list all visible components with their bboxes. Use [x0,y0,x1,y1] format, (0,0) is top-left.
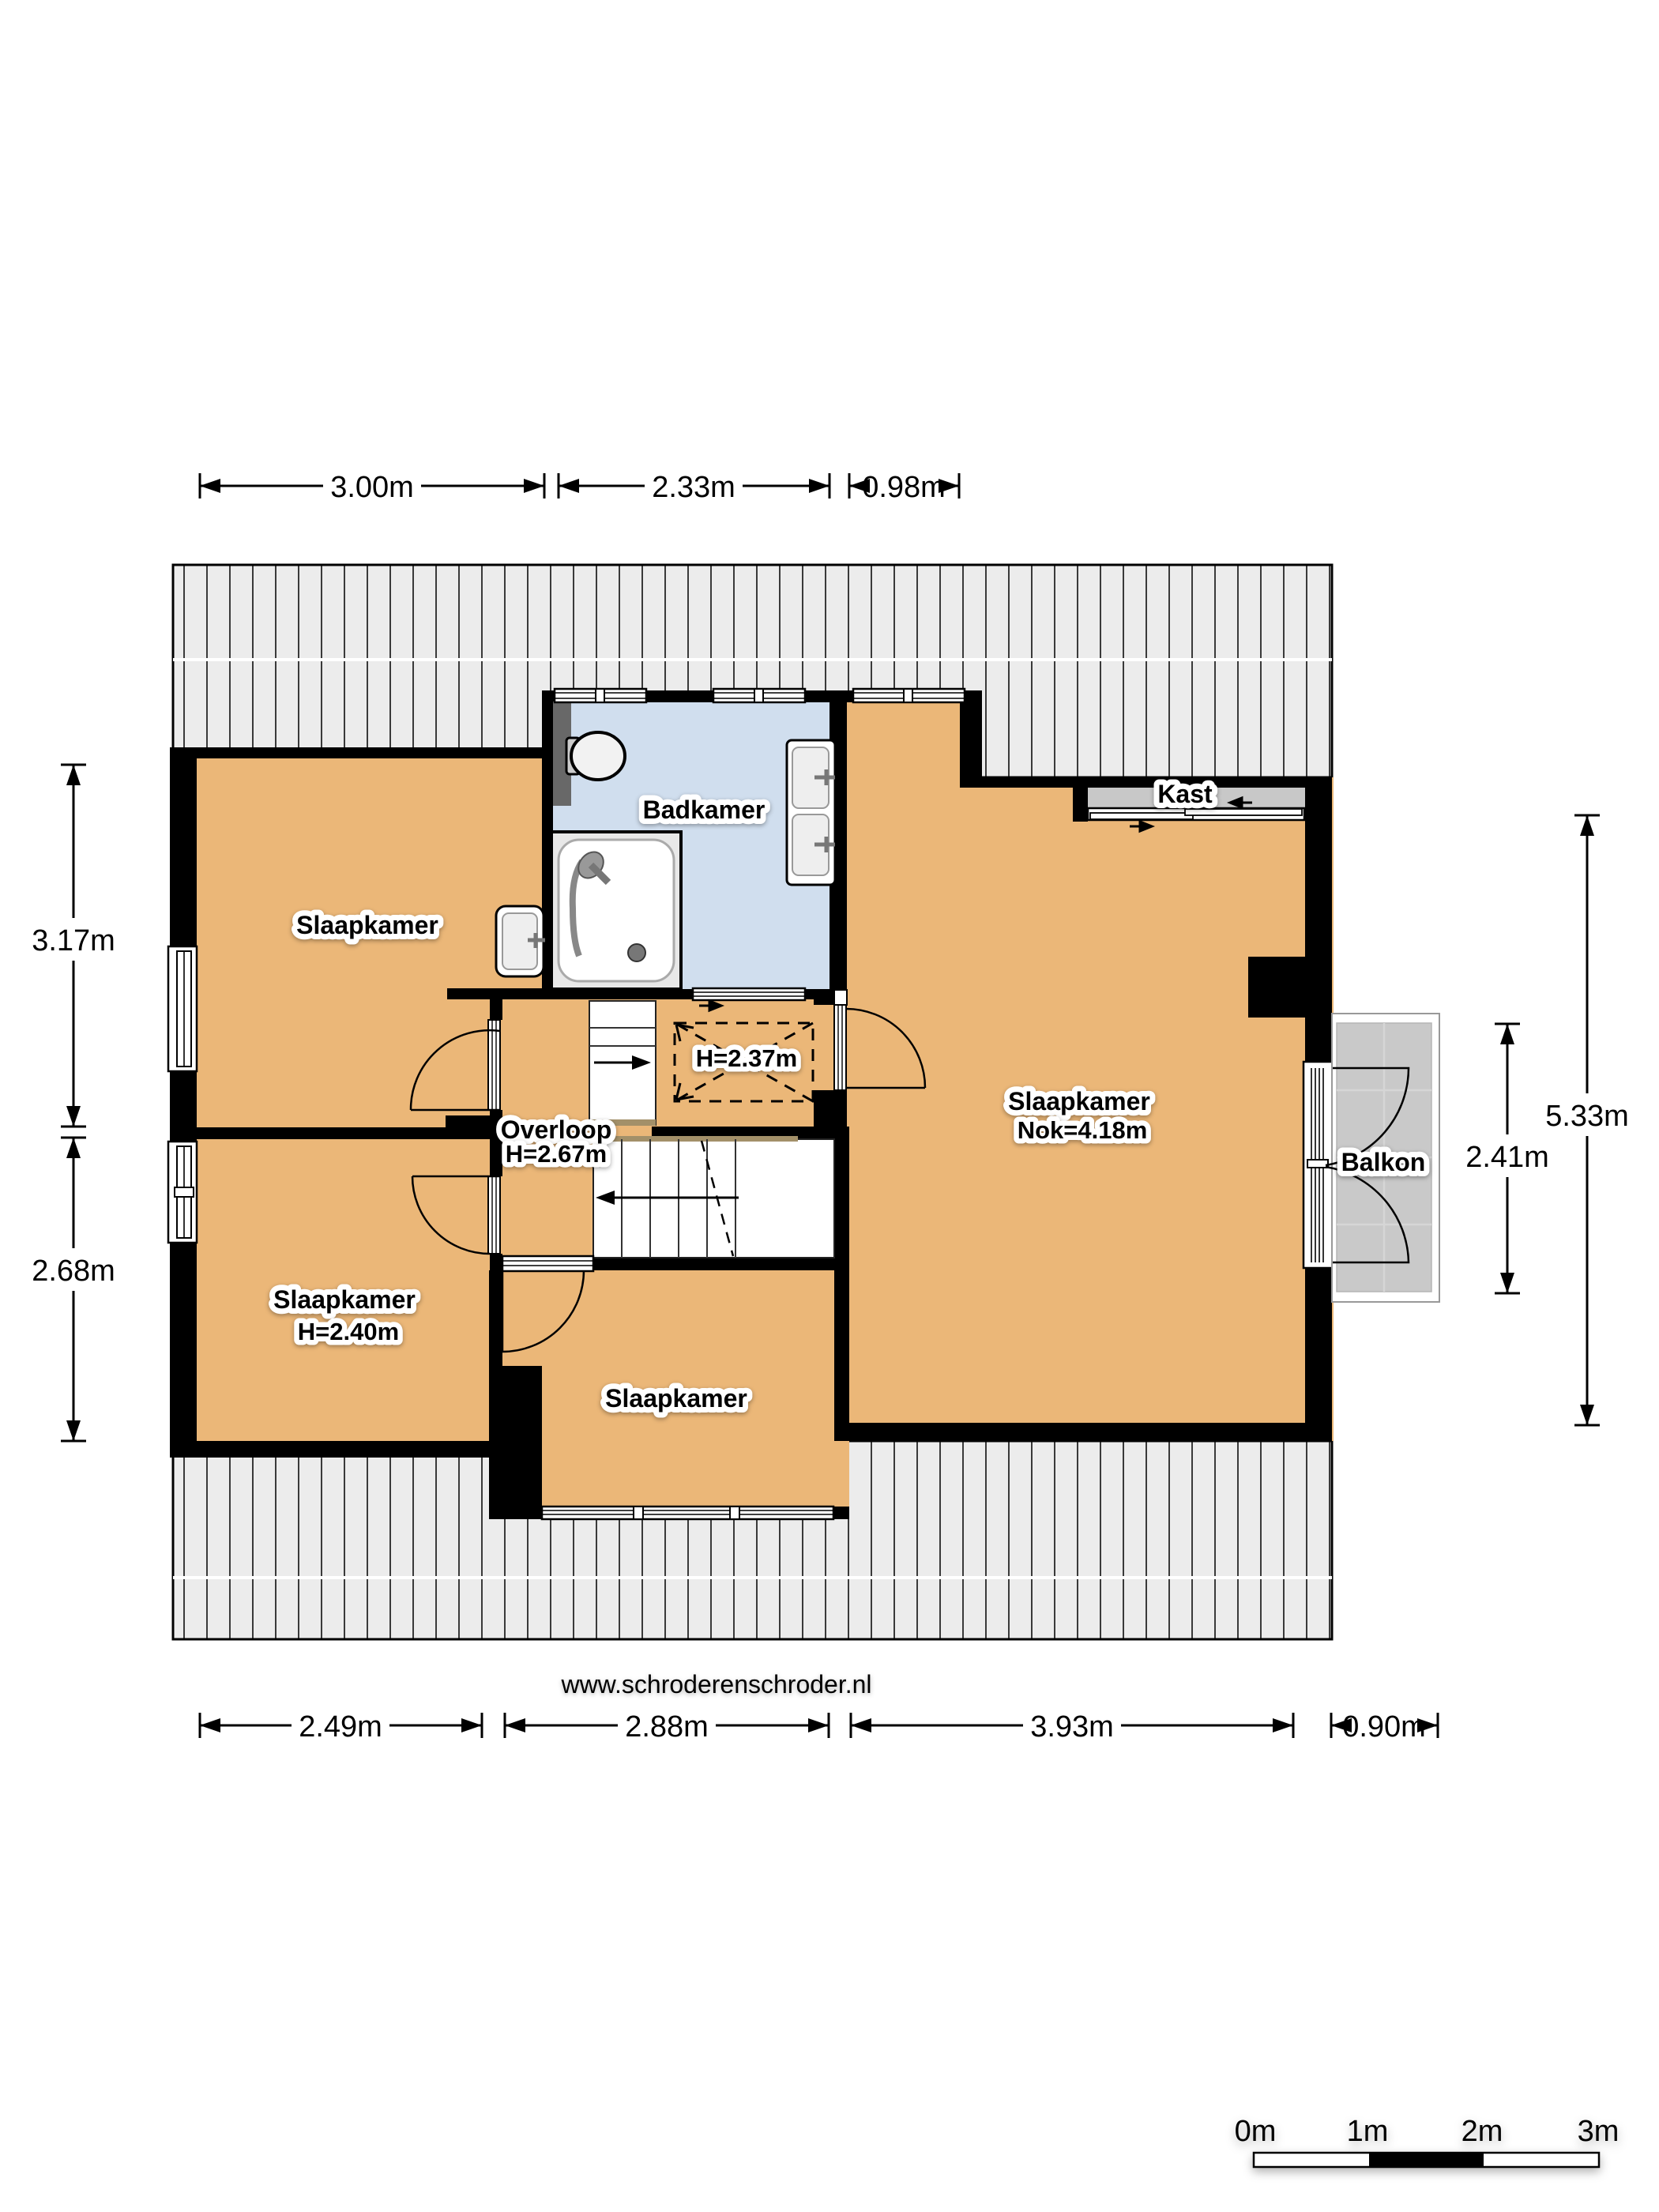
svg-text:2.41m: 2.41m [1465,1141,1549,1174]
svg-text:Slaapkamer: Slaapkamer [296,911,438,939]
svg-text:www.schroderenschroder.nl: www.schroderenschroder.nl [560,1670,871,1698]
svg-text:H=2.67m: H=2.67m [506,1140,607,1168]
svg-text:0.90m: 0.90m [1342,1710,1426,1744]
svg-text:3m: 3m [1578,2115,1619,2148]
svg-text:1m: 1m [1347,2115,1389,2148]
svg-text:Slaapkamer: Slaapkamer [605,1384,747,1413]
svg-text:3.00m: 3.00m [330,471,414,504]
svg-text:Badkamer: Badkamer [643,796,766,824]
svg-text:Balkon: Balkon [1341,1148,1426,1176]
svg-text:0.98m: 0.98m [862,471,946,504]
svg-text:Nok=4.18m: Nok=4.18m [1018,1116,1148,1144]
svg-text:2.49m: 2.49m [299,1710,382,1744]
svg-text:2m: 2m [1461,2115,1503,2148]
svg-text:Kast: Kast [1157,780,1213,808]
svg-text:0m: 0m [1235,2115,1277,2148]
svg-text:5.33m: 5.33m [1545,1100,1629,1133]
svg-text:H=2.40m: H=2.40m [298,1318,399,1345]
svg-text:2.68m: 2.68m [32,1255,115,1288]
svg-text:3.17m: 3.17m [32,924,115,957]
svg-text:3.93m: 3.93m [1030,1710,1114,1744]
svg-text:Slaapkamer: Slaapkamer [273,1285,416,1314]
svg-text:2.88m: 2.88m [625,1710,709,1744]
svg-text:H=2.37m: H=2.37m [696,1044,797,1072]
svg-text:2.33m: 2.33m [652,471,735,504]
svg-text:Slaapkamer: Slaapkamer [1008,1087,1150,1115]
